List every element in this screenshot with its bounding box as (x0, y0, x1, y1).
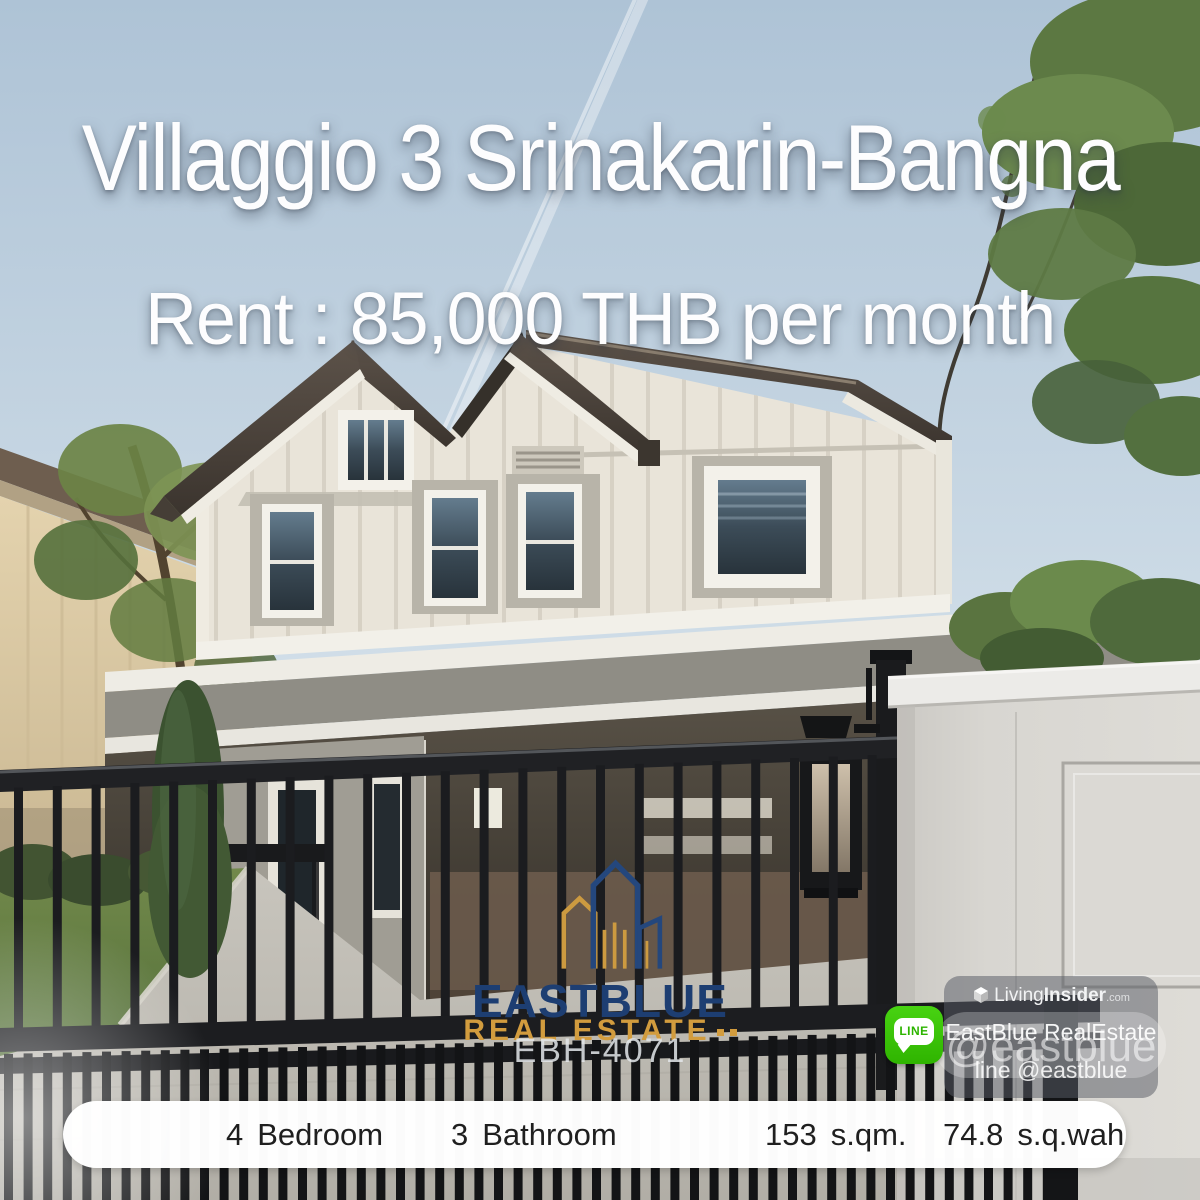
agency-full-name: EastBlue RealEstate (930, 1019, 1172, 1046)
info-bedroom: 4 Bedroom (226, 1101, 383, 1168)
info-area-sqm: 153 s.qm. (765, 1101, 907, 1168)
line-app-icon: LINE (885, 1006, 943, 1064)
info-area-sqwah: 74.8 s.q.wah (943, 1101, 1124, 1168)
livinginsider-cube-icon (972, 986, 990, 1010)
rent-price-line: Rent : 85,000 THB per month (0, 276, 1200, 361)
line-handle-caption: line @eastblue (944, 1057, 1158, 1084)
eastblue-logo-icon (545, 856, 675, 976)
property-info-bar: 4 Bedroom 3 Bathroom 153 s.qm. 74.8 s.q.… (63, 1101, 1126, 1168)
livinginsider-watermark: LivingInsider.com (944, 985, 1158, 1010)
listing-title: Villaggio 3 Srinakarin-Bangna (0, 104, 1200, 212)
listing-flyer: Villaggio 3 Srinakarin-Bangna Rent : 85,… (0, 0, 1200, 1200)
info-bathroom: 3 Bathroom (451, 1101, 617, 1168)
line-app-icon-label: LINE (894, 1018, 934, 1045)
